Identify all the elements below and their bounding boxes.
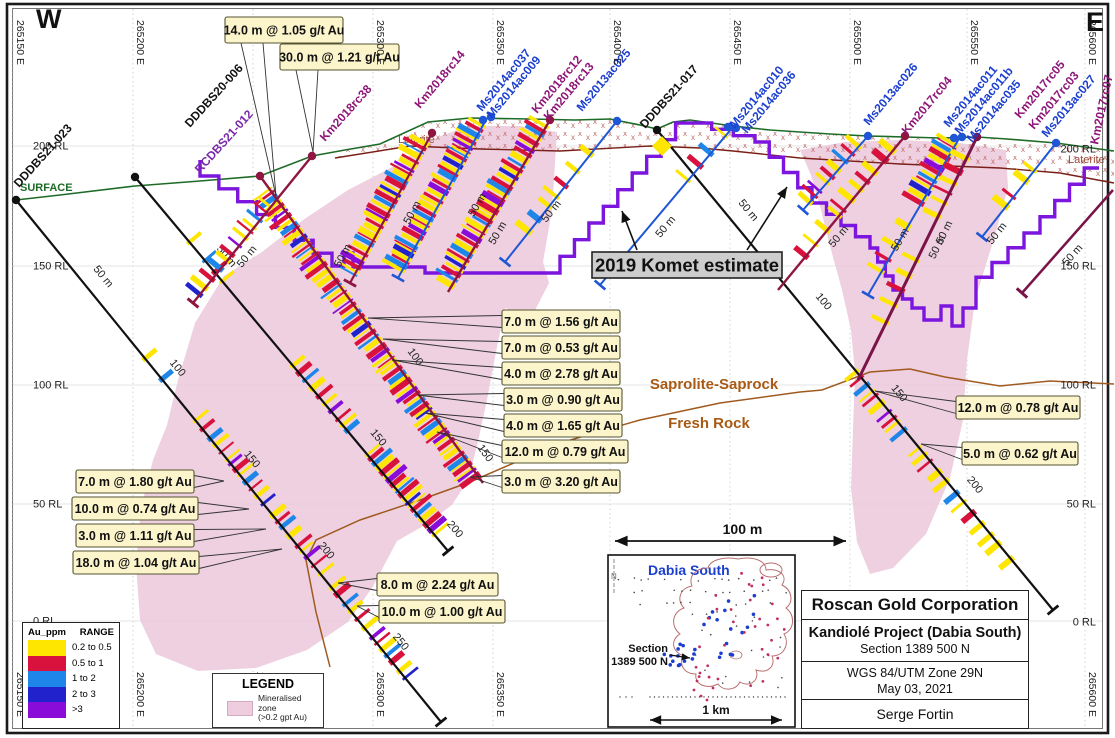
- mineralised-zone-label: Mineralised zone: [258, 693, 301, 713]
- svg-text:7.0 m @ 0.53 g/t Au: 7.0 m @ 0.53 g/t Au: [504, 341, 618, 355]
- svg-text:3.0 m @ 0.90 g/t Au: 3.0 m @ 0.90 g/t Au: [506, 393, 620, 407]
- hole-label-Km2018rc38: Km2018rc38: [317, 82, 375, 144]
- collar-dot: [131, 173, 139, 181]
- date: May 03, 2021: [802, 681, 1028, 697]
- range-1-2: 1 to 2: [72, 673, 96, 684]
- mineralised-zone-legend: LEGEND Mineralised zone(>0.2 gpt Au): [212, 673, 324, 728]
- scale-bar-100m: 100 m: [615, 521, 846, 541]
- range-05-1: 0.5 to 1: [72, 658, 104, 669]
- inset-section-label: Section: [628, 643, 668, 655]
- cross-section-figure: xxLateriteLateriteSaprolite-SaprockFresh…: [0, 0, 1115, 738]
- svg-text:7.0 m @ 1.80 g/t Au: 7.0 m @ 1.80 g/t Au: [78, 475, 192, 489]
- svg-text:8.0 m @ 2.24 g/t Au: 8.0 m @ 2.24 g/t Au: [381, 578, 495, 592]
- axis-top-265200 E: 265200 E: [134, 20, 146, 65]
- axis-top-265400 E: 265400 E: [611, 20, 623, 65]
- collar-dot: [308, 152, 316, 160]
- swatch-gt3: [28, 702, 66, 718]
- legend-title: LEGEND: [213, 674, 323, 691]
- depth-label: 50 m: [736, 197, 761, 224]
- laterite-label-1: Laterite: [1068, 154, 1105, 166]
- callout-10.0-1.00-: 10.0 m @ 1.00 g/t Au: [357, 600, 505, 623]
- axis-top-265550 E: 265550 E: [968, 20, 980, 65]
- legend-au-title: Au_ppm: [28, 627, 66, 638]
- fresh-rock-label: Fresh Rock: [668, 415, 750, 432]
- collar-dot: [950, 134, 958, 142]
- svg-text:18.0 m @ 1.04 g/t Au: 18.0 m @ 1.04 g/t Au: [76, 556, 197, 570]
- komet-label-text: 2019 Komet estimate: [595, 255, 779, 276]
- axis-bottom-265600 E: 265600 E: [1086, 672, 1098, 717]
- inset-km-label: 1 km: [702, 703, 729, 717]
- hole-label-DDDBS21-023: DDDBS21-023: [11, 121, 75, 190]
- svg-text:1389 500 N: 1389 500 N: [611, 656, 668, 668]
- axis-left-150 RL: 150 RL: [33, 261, 68, 273]
- hole-label-Km2018rc14: Km2018rc14: [412, 48, 468, 111]
- axis-bottom-265350 E: 265350 E: [494, 672, 506, 717]
- author: Serge Fortin: [802, 700, 1028, 727]
- inset-map: NDabia SouthSection1389 500 N1 km: [608, 555, 795, 727]
- komet-estimate: 2019 Komet estimate: [592, 187, 787, 278]
- collar-dot: [428, 129, 436, 137]
- axis-bottom-265300 E: 265300 E: [374, 672, 386, 717]
- svg-text:7.0 m @ 1.56 g/t Au: 7.0 m @ 1.56 g/t Au: [504, 315, 618, 329]
- collar-dot: [613, 117, 621, 125]
- svg-text:4.0 m @ 2.78 g/t Au: 4.0 m @ 2.78 g/t Au: [504, 367, 618, 381]
- collar-dot: [256, 172, 264, 180]
- callout-3.0-3.20-: 3.0 m @ 3.20 g/t Au: [470, 470, 620, 493]
- inset-title: Dabia South: [648, 562, 730, 578]
- axis-top-265350 E: 265350 E: [494, 20, 506, 65]
- company-name: Roscan Gold Corporation: [802, 591, 1028, 620]
- depth-label: 200: [444, 519, 465, 541]
- axis-top-265500 E: 265500 E: [851, 20, 863, 65]
- axis-right-100 RL: 100 RL: [1061, 380, 1096, 392]
- collar-dot: [12, 196, 20, 204]
- surface-label: SURFACE: [20, 182, 73, 194]
- collar-dot: [653, 126, 661, 134]
- project-name: Kandiolé Project (Dabia South): [802, 625, 1028, 641]
- north-indicator: N: [611, 572, 617, 581]
- svg-text:12.0 m @ 0.79 g/t Au: 12.0 m @ 0.79 g/t Au: [505, 445, 626, 459]
- range-02-05: 0.2 to 0.5: [72, 642, 112, 653]
- collar-dot: [864, 132, 872, 140]
- mineralised-zone-cutoff: (>0.2 gpt Au): [258, 712, 307, 722]
- axis-left-200 RL: 200 RL: [33, 141, 68, 153]
- svg-text:3.0 m @ 1.11 g/t Au: 3.0 m @ 1.11 g/t Au: [78, 529, 191, 543]
- inset-frame: [608, 555, 795, 727]
- svg-text:10.0 m @ 1.00 g/t Au: 10.0 m @ 1.00 g/t Au: [382, 605, 503, 619]
- depth-label: 50 m: [91, 263, 116, 290]
- mineralised-zone-swatch: [227, 701, 253, 716]
- axis-right-0 RL: 0 RL: [1073, 617, 1096, 629]
- axis-left-50 RL: 50 RL: [33, 499, 62, 511]
- saprolite-saprock-label: Saprolite-Saprock: [650, 376, 779, 393]
- svg-text:4.0 m @ 1.65 g/t Au: 4.0 m @ 1.65 g/t Au: [506, 419, 620, 433]
- axis-top-265300 E: 265300 E: [374, 20, 386, 65]
- legend-range-title: RANGE: [80, 627, 114, 638]
- swatch-05-1: [28, 656, 66, 672]
- scale-100m-label: 100 m: [723, 521, 763, 537]
- drillhole-Km2017rc07: 50 m: [1017, 190, 1113, 298]
- collar-dot: [1052, 139, 1060, 147]
- west-marker: W: [36, 4, 61, 35]
- section-name: Section 1389 500 N: [802, 642, 1028, 656]
- axis-top-265150 E: 265150 E: [14, 20, 26, 65]
- axis-right-200 RL: 200 RL: [1061, 144, 1096, 156]
- axis-left-100 RL: 100 RL: [33, 380, 68, 392]
- komet-arrow: [622, 211, 637, 250]
- assay-colour-legend: Au_ppm RANGE 0.2 to 0.5 0.5 to 1 1 to 2 …: [22, 622, 120, 729]
- axis-right-150 RL: 150 RL: [1061, 261, 1096, 273]
- svg-text:3.0 m @ 3.20 g/t Au: 3.0 m @ 3.20 g/t Au: [504, 475, 618, 489]
- datum: WGS 84/UTM Zone 29N: [802, 665, 1028, 681]
- axis-top-265450 E: 265450 E: [731, 20, 743, 65]
- east-marker: E: [1086, 7, 1104, 38]
- axis-bottom-265200 E: 265200 E: [134, 672, 146, 717]
- swatch-1-2: [28, 671, 66, 687]
- depth-label: 100: [813, 291, 834, 313]
- swatch-2-3: [28, 687, 66, 703]
- axis-right-50 RL: 50 RL: [1067, 499, 1096, 511]
- title-block: Roscan Gold Corporation Kandiolé Project…: [801, 590, 1029, 729]
- range-2-3: 2 to 3: [72, 689, 96, 700]
- svg-text:12.0 m @ 0.78 g/t Au: 12.0 m @ 0.78 g/t Au: [958, 401, 1079, 415]
- svg-text:5.0 m @ 0.62 g/t Au: 5.0 m @ 0.62 g/t Au: [963, 447, 1077, 461]
- svg-text:10.0 m @ 0.74 g/t Au: 10.0 m @ 0.74 g/t Au: [75, 502, 196, 516]
- mineralised-zone-east: [800, 140, 1008, 574]
- svg-text:14.0 m @ 1.05 g/t Au: 14.0 m @ 1.05 g/t Au: [224, 24, 345, 38]
- collar-dot: [479, 116, 487, 124]
- range-gt3: >3: [72, 704, 83, 715]
- swatch-02-05: [28, 640, 66, 656]
